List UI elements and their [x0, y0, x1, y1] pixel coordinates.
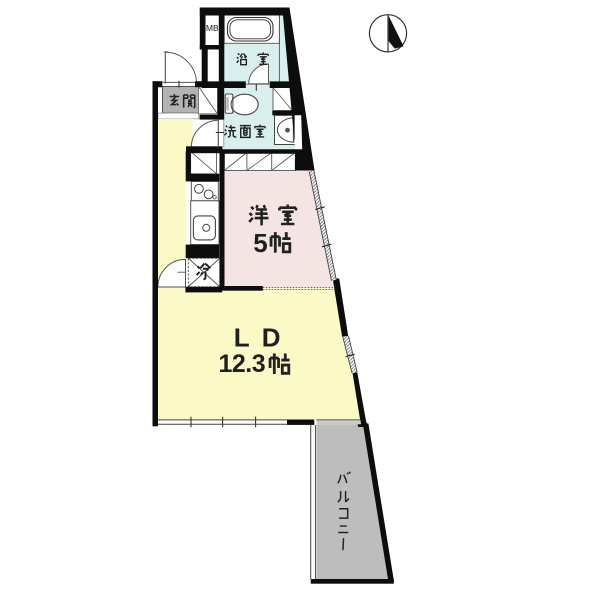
svg-text:MB: MB — [206, 23, 219, 33]
svg-text:L: L — [234, 323, 250, 353]
svg-text:12.3: 12.3 — [219, 350, 266, 378]
svg-text:5: 5 — [253, 228, 267, 258]
svg-text:D: D — [262, 323, 281, 353]
